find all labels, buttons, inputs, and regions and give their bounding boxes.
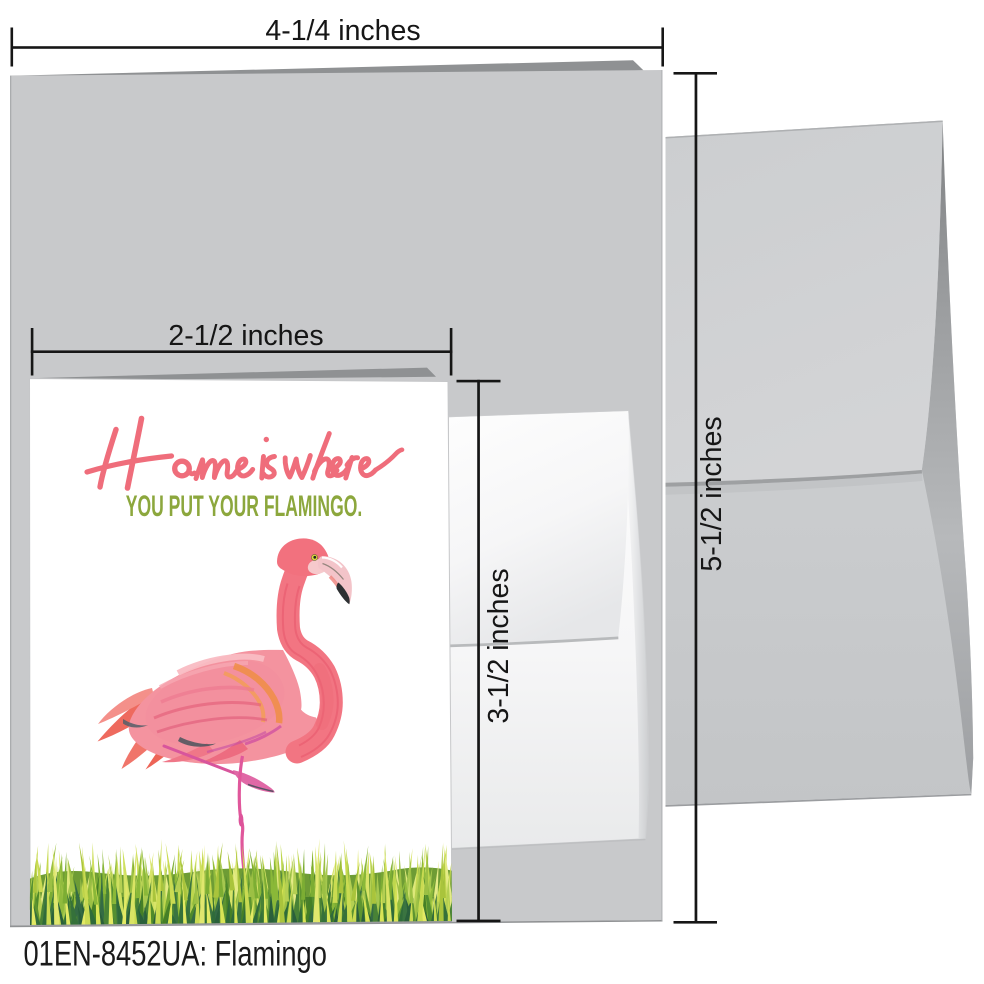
svg-text:2-1/2 inches: 2-1/2 inches <box>168 320 323 352</box>
svg-text:01EN-8452UA: Flamingo: 01EN-8452UA: Flamingo <box>24 934 327 973</box>
svg-text:4-1/4 inches: 4-1/4 inches <box>265 15 420 47</box>
svg-text:YOU PUT YOUR FLAMINGO.: YOU PUT YOUR FLAMINGO. <box>126 490 362 523</box>
svg-text:5-1/2 inches: 5-1/2 inches <box>696 416 728 571</box>
svg-text:3-1/2 inches: 3-1/2 inches <box>483 568 515 723</box>
